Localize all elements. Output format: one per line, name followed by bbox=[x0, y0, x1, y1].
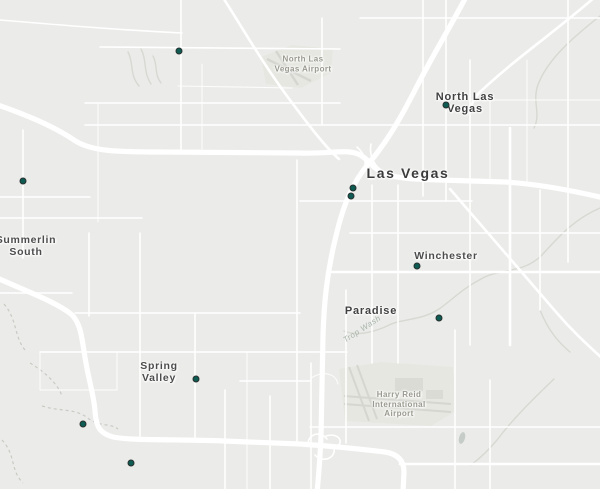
map-canvas[interactable]: Las Vegas North Las Vegas Summerlin Sout… bbox=[0, 0, 600, 489]
marker-layer bbox=[0, 0, 600, 489]
map-marker[interactable] bbox=[193, 376, 200, 383]
map-marker[interactable] bbox=[443, 102, 450, 109]
map-marker[interactable] bbox=[80, 421, 87, 428]
map-marker[interactable] bbox=[436, 315, 443, 322]
map-marker[interactable] bbox=[414, 263, 421, 270]
map-marker[interactable] bbox=[350, 185, 357, 192]
map-marker[interactable] bbox=[348, 193, 355, 200]
map-marker[interactable] bbox=[20, 178, 27, 185]
map-marker[interactable] bbox=[128, 460, 135, 467]
map-marker[interactable] bbox=[176, 48, 183, 55]
